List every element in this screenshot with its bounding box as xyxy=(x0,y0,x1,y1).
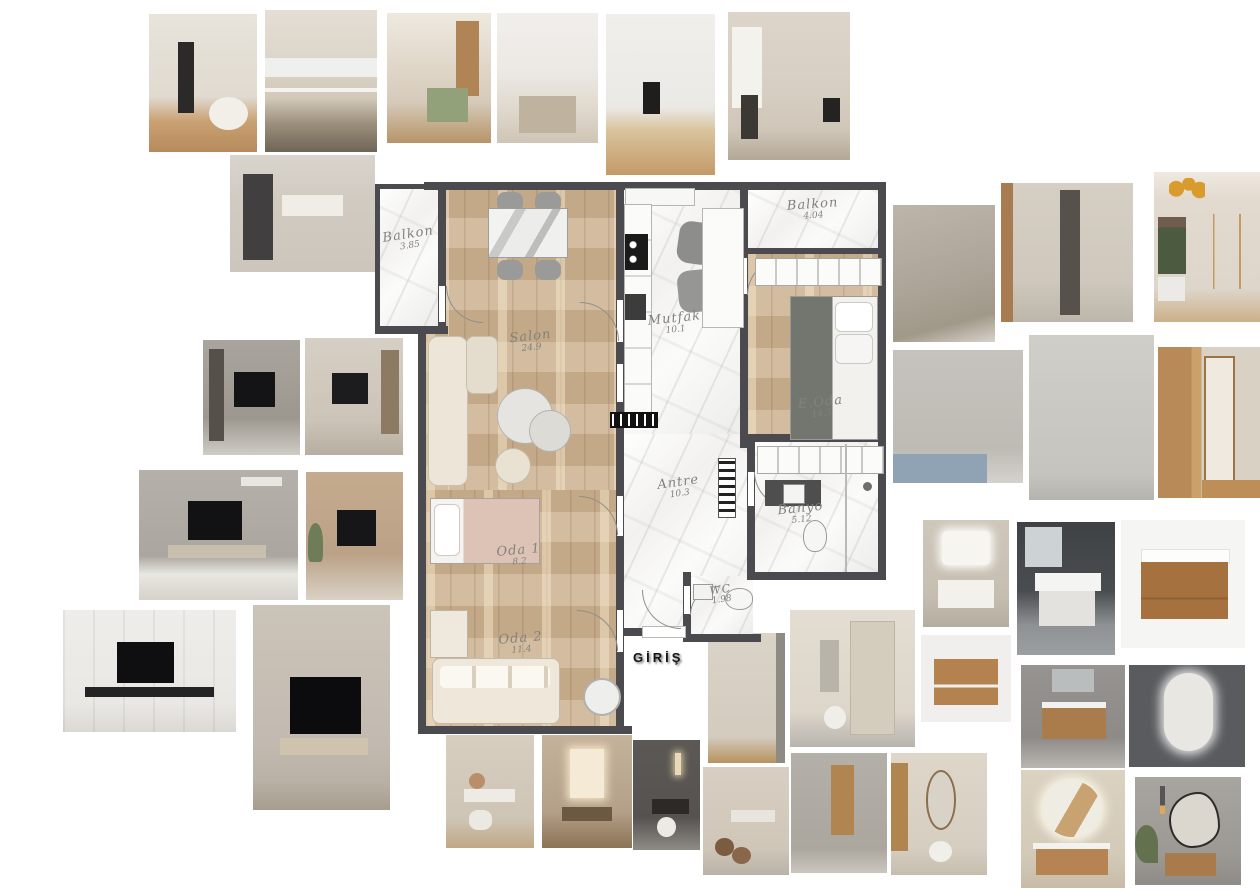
console xyxy=(731,810,776,822)
dishwasher-label xyxy=(610,412,658,428)
eoda-wardrobe-row xyxy=(755,258,882,286)
sofa-chaise xyxy=(466,336,498,394)
mirror xyxy=(1204,356,1235,487)
photo-mirror-backlit-dark xyxy=(1129,665,1245,767)
walnut-cabinet xyxy=(1141,562,1228,618)
photo-kitchen-dark-fridge xyxy=(230,155,375,272)
fridge xyxy=(243,174,273,261)
coffee-table-small xyxy=(529,410,571,452)
pouf xyxy=(929,841,952,862)
wood-shelf-column xyxy=(456,21,479,96)
wardrobe-handles xyxy=(1196,214,1255,289)
wc-sink xyxy=(693,584,713,600)
oven-column xyxy=(178,42,194,114)
console xyxy=(652,799,690,813)
window xyxy=(1158,217,1186,274)
door-gap-oda2 xyxy=(617,610,623,652)
black-console xyxy=(85,687,213,697)
photo-tv-wall-classic-white xyxy=(63,610,236,732)
photo-living-tv-dark-tall xyxy=(253,605,390,810)
chandelier xyxy=(1169,178,1205,202)
wc-toilet xyxy=(725,588,753,610)
wood-edge xyxy=(1001,183,1013,322)
dining-chair xyxy=(497,260,523,280)
photo-wardrobe-mirror-cream xyxy=(1001,183,1133,322)
kitchen-island xyxy=(702,208,744,328)
photo-vanity-wood-graywall xyxy=(1021,665,1125,768)
photo-kitchen-beige-counter xyxy=(265,10,377,152)
round-mirror xyxy=(1043,781,1101,838)
pouf xyxy=(657,817,676,837)
green-island xyxy=(427,88,469,122)
photo-bedroom-chandelier xyxy=(1154,172,1260,322)
wood-floor xyxy=(1202,480,1260,498)
console xyxy=(280,738,368,754)
door-gap-oda1 xyxy=(617,496,623,536)
room-balkon-2 xyxy=(747,188,884,254)
entrance-label: GİRİŞ xyxy=(633,650,683,665)
room-balkon-1 xyxy=(376,186,440,328)
wall-banyo-bottom xyxy=(747,572,886,580)
photo-wardrobe-gray-bed xyxy=(893,350,1023,483)
photo-tv-wall-marble-shelf xyxy=(203,340,300,455)
counter-top xyxy=(265,88,377,92)
photo-entry-beige-stools xyxy=(703,767,789,875)
tv xyxy=(337,510,376,546)
tv xyxy=(332,373,367,403)
photo-vanity-wood-whitetop xyxy=(1121,520,1245,648)
marble-backsplash xyxy=(265,58,377,76)
plant xyxy=(1135,825,1158,864)
photo-kitchen-beige-window xyxy=(728,12,850,160)
wall-balkon1-left xyxy=(375,184,380,330)
dining-chair xyxy=(535,260,561,280)
photo-kitchen-white-black-oven xyxy=(149,14,257,152)
bench xyxy=(562,807,612,821)
mirror xyxy=(1052,669,1094,692)
wall-lamp xyxy=(675,753,682,775)
sofa xyxy=(428,336,468,486)
vanity-cabinet xyxy=(938,580,993,608)
banyo-cabinet-row xyxy=(757,446,884,474)
stone-vanity xyxy=(1165,853,1216,877)
door-gap-banyo xyxy=(748,472,754,506)
flowers xyxy=(469,773,485,789)
antre-cabinet xyxy=(718,458,736,518)
wall-entry-left xyxy=(624,628,642,636)
door-gap-wc xyxy=(684,586,690,614)
radiator xyxy=(1158,277,1185,301)
wall-balkon2-eoda xyxy=(747,248,884,254)
backlit-mirror xyxy=(942,531,990,565)
photo-wardrobe-taupe-corridor xyxy=(893,205,995,342)
banyo-sink xyxy=(783,484,805,504)
stool xyxy=(732,847,751,864)
bed-pillow xyxy=(835,334,873,364)
oda2-cabinet xyxy=(430,610,468,658)
photo-vanity-white-darkwall xyxy=(1017,522,1115,655)
oak-cabinet xyxy=(1042,708,1106,739)
basin xyxy=(1035,573,1102,592)
ac-unit xyxy=(241,477,282,486)
pendant-light xyxy=(1160,786,1164,814)
dining-table xyxy=(209,97,248,130)
tv xyxy=(117,642,174,683)
console xyxy=(464,789,515,801)
photo-corridor-gray-panels xyxy=(791,753,887,873)
taupe-island xyxy=(519,96,576,132)
toilet xyxy=(803,520,827,552)
photo-entry-flowers-console xyxy=(446,735,534,848)
door-gap-balkon1 xyxy=(439,286,445,322)
dining-table xyxy=(488,208,568,258)
photo-kitchen-marble-island xyxy=(497,13,598,143)
pouf xyxy=(469,810,492,830)
photo-kitchen-white-oven xyxy=(606,14,715,175)
kitchen-sink xyxy=(625,294,646,320)
shower-drain xyxy=(863,482,872,491)
backlit-mirror xyxy=(1164,673,1213,751)
photo-tv-wall-gray-long xyxy=(139,470,298,600)
dark-chair xyxy=(741,95,758,139)
wall-wc-bottom xyxy=(683,634,761,642)
photo-kitchen-wood-dining xyxy=(387,13,491,143)
cooktop xyxy=(625,234,648,270)
photo-bath-round-mirror xyxy=(1021,770,1125,888)
oak-cabinet xyxy=(934,659,999,704)
floor-plan: Balkon3.85 Salon24.9 Mutfak10.1 Balkon4.… xyxy=(375,182,886,734)
vanity-cabinet xyxy=(1039,591,1096,626)
photo-vanity-wood-shelf xyxy=(921,635,1011,722)
plant xyxy=(308,523,324,561)
oval-mirror xyxy=(926,770,957,830)
wood-niche xyxy=(831,765,854,835)
oven xyxy=(823,98,840,122)
wood-column xyxy=(891,763,908,851)
moodboard: Balkon3.85 Salon24.9 Mutfak10.1 Balkon4.… xyxy=(0,0,1260,891)
photo-entry-dark-lamp xyxy=(633,740,700,850)
oven xyxy=(643,82,660,114)
wall-left-lower xyxy=(418,326,426,734)
wall-balkon1-top xyxy=(375,184,427,189)
tv xyxy=(188,501,242,540)
oda2-round-table xyxy=(583,678,621,716)
wall-right-outer xyxy=(878,182,886,580)
wall-antre-banyo xyxy=(747,440,755,580)
lit-backsplash xyxy=(282,195,343,216)
bench xyxy=(168,545,267,558)
photo-bath-organic-mirror xyxy=(1135,777,1241,885)
oda2-sofa-cushions xyxy=(440,666,550,688)
mirror xyxy=(1025,527,1062,567)
mirror-column xyxy=(1060,190,1080,315)
stool xyxy=(715,838,734,855)
photo-wardrobe-wood-mirror xyxy=(1158,347,1260,498)
bed-single-pillow xyxy=(434,504,460,556)
lit-mirror xyxy=(570,749,604,799)
armchair xyxy=(495,448,531,484)
tv xyxy=(234,372,275,407)
photo-entry-oval-mirror xyxy=(891,753,987,875)
shower-divider xyxy=(845,444,847,572)
bed-blue-bedding xyxy=(893,454,987,483)
photo-entry-lit-mirror xyxy=(542,735,632,848)
photo-vanity-white-backlit xyxy=(923,520,1009,627)
tv xyxy=(290,677,361,734)
door-gap-salon-2 xyxy=(617,364,623,402)
bed-pillow xyxy=(835,302,873,332)
wall-oda2-bottom xyxy=(418,726,632,734)
photo-wardrobe-tall-gray xyxy=(1029,335,1154,500)
shelf-column xyxy=(209,349,225,441)
wood-vanity xyxy=(1036,849,1109,875)
organic-mirror xyxy=(1169,792,1220,848)
